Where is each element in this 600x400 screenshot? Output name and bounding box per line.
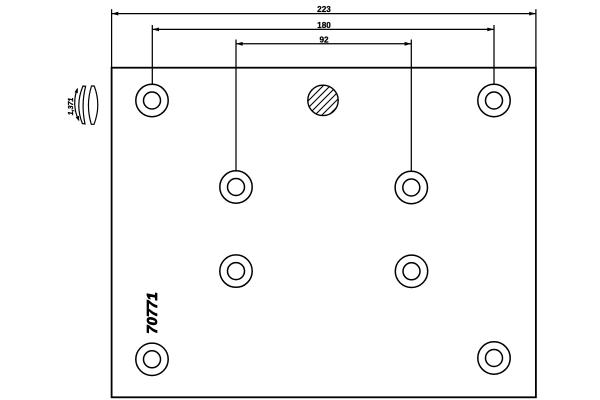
svg-text:1,371: 1,371 [68, 98, 75, 116]
svg-text:180: 180 [317, 21, 331, 30]
svg-text:70771: 70771 [144, 292, 161, 334]
svg-text:92: 92 [319, 35, 329, 44]
svg-text:223: 223 [317, 5, 331, 14]
